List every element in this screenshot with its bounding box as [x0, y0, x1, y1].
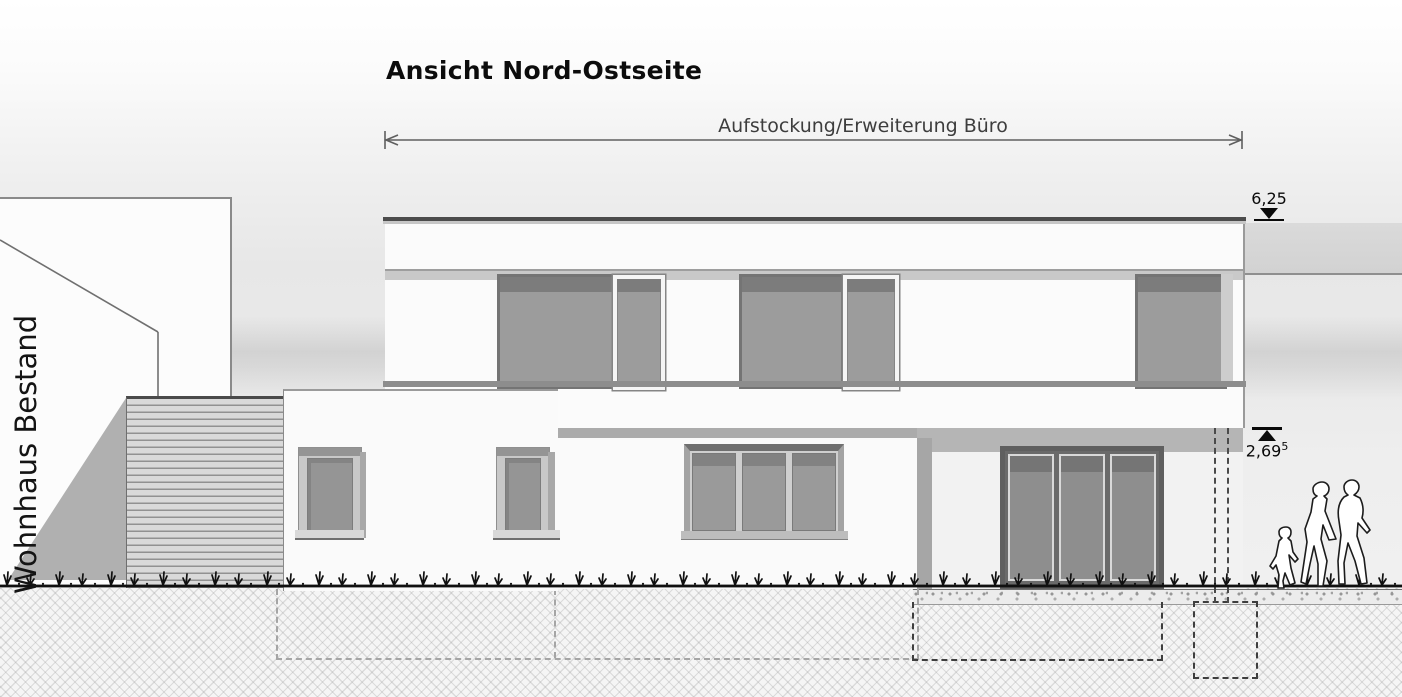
- window-blind-shade: [617, 279, 661, 292]
- foundation-outline-dashed: [912, 602, 1163, 661]
- triple-window: [684, 444, 844, 539]
- corner-reveal: [1221, 274, 1233, 383]
- neighbor-roof-band: [1244, 223, 1402, 275]
- level-value-superscript: 5: [1281, 440, 1288, 453]
- upper-window-1: [497, 274, 615, 389]
- basement-wall-dashed: [554, 589, 556, 658]
- level-value-upper-floor: 2,695: [1246, 441, 1289, 460]
- roof-edge-highlight: [383, 221, 1246, 224]
- window-glass-shade: [693, 454, 735, 466]
- door-pane-3: [1110, 454, 1156, 581]
- window-sill-band: [383, 381, 1246, 387]
- window-blind-shade: [742, 277, 841, 292]
- door-pane-1: [1008, 454, 1054, 581]
- lower-window-2: [496, 447, 550, 540]
- man-silhouette: [1338, 480, 1370, 584]
- window-lintel-shade: [299, 448, 361, 456]
- basement-outline-dashed: [276, 589, 919, 660]
- window-blind-shade: [500, 277, 612, 292]
- door-pane-2: [1059, 454, 1105, 581]
- upper-door-window-1: [613, 275, 665, 390]
- slab-soffit-left: [556, 428, 917, 438]
- door-glass-shade: [1061, 456, 1103, 472]
- window-glass-shade: [743, 454, 785, 466]
- triple-window-sill: [681, 531, 848, 540]
- level-triangle-up-icon: [1258, 430, 1276, 441]
- level-marker-roof: 6,25: [1239, 190, 1299, 221]
- elevation-drawing: Aufstockung/Erweiterung Büro Ansicht Nor…: [0, 0, 1402, 697]
- dimension-label: Aufstockung/Erweiterung Büro: [598, 115, 1128, 137]
- column-footing-dashed: [1193, 601, 1258, 679]
- window-blind-shade: [1138, 277, 1224, 292]
- window-glass: [307, 458, 353, 531]
- existing-building-label: Wohnhaus Bestand: [9, 294, 49, 594]
- window-lintel-shade: [497, 448, 549, 456]
- window-glass-shade: [793, 454, 835, 466]
- window-blind-shade: [847, 279, 895, 292]
- level-marker-upper-floor: 2,695: [1237, 427, 1297, 459]
- window-glass: [505, 458, 541, 531]
- upper-window-2: [739, 274, 844, 389]
- triple-window-pane-2: [742, 453, 786, 531]
- window-reveal-shadow: [548, 452, 555, 538]
- level-bar: [1254, 219, 1284, 222]
- slatted-annex: [126, 396, 284, 592]
- window-reveal-shadow: [360, 452, 366, 538]
- triple-window-pane-3: [792, 453, 836, 531]
- door-glass-shade: [1112, 456, 1154, 472]
- upper-door-window-2: [843, 275, 899, 390]
- window-sill: [493, 530, 560, 540]
- woman-silhouette: [1301, 482, 1336, 586]
- level-triangle-down-icon: [1260, 208, 1278, 219]
- window-sill: [295, 530, 364, 540]
- triple-window-pane-1: [692, 453, 736, 531]
- child-silhouette: [1270, 527, 1298, 588]
- upper-window-3: [1135, 274, 1227, 389]
- lower-window-1: [298, 447, 362, 540]
- door-glass-shade: [1010, 456, 1052, 472]
- level-value-roof: 6,25: [1251, 190, 1287, 208]
- ground-line-grass: [0, 567, 1402, 589]
- drawing-title: Ansicht Nord-Ostseite: [386, 56, 702, 85]
- people-silhouettes: [1266, 468, 1378, 590]
